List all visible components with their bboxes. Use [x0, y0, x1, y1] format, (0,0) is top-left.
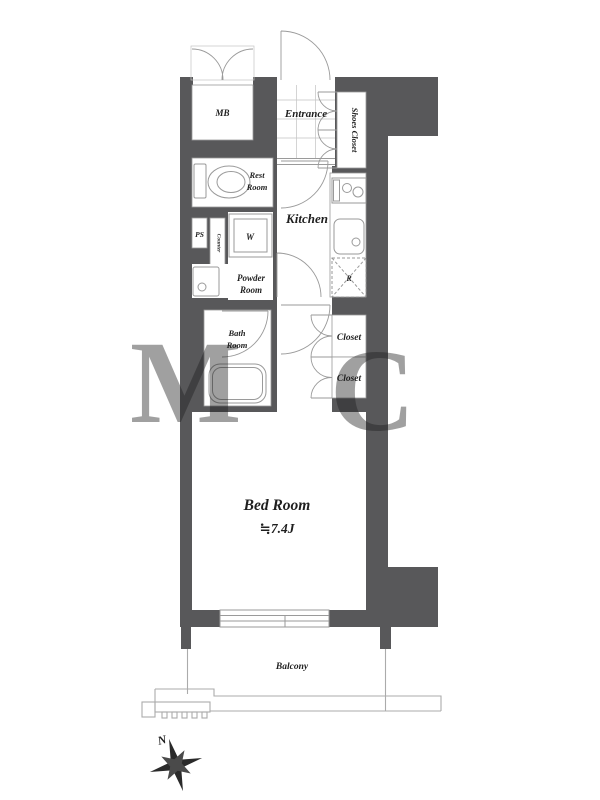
basin-nook	[192, 264, 230, 298]
watermark-letter-m: M	[130, 317, 241, 448]
bed-room-size-label: ≒7.4J	[260, 521, 296, 536]
powder-room-label-2: Room	[239, 285, 262, 295]
closet-lower-label: Closet	[337, 374, 362, 384]
compass: N	[150, 732, 202, 791]
railing-left-post	[142, 702, 155, 717]
bath-room-label-2: Room	[226, 340, 248, 350]
washer-label: W	[246, 232, 255, 242]
rest-room-label-2: Room	[246, 182, 268, 192]
railing-teeth	[162, 712, 207, 718]
entrance-floor	[277, 80, 335, 166]
wall-bottom-right-block	[366, 567, 438, 627]
wall-top-right-block	[366, 77, 438, 136]
railing-left-box	[155, 702, 210, 712]
shoes-closet-label: Shoes Closet	[350, 108, 360, 153]
watermark-letter-c: C	[330, 325, 415, 456]
floor-plan: M C MB Entrance Shoes Closet Rest Room P…	[0, 0, 600, 800]
bed-room-label: Bed Room	[243, 497, 311, 514]
wall-bottom-left	[192, 610, 222, 627]
balcony-railing	[142, 649, 441, 718]
kitchen-label: Kitchen	[285, 211, 328, 226]
railing-top-line	[155, 689, 441, 711]
mb-doors	[191, 46, 254, 80]
kitchen-hall-floor	[277, 161, 332, 412]
floor-plan-page: M C MB Entrance Shoes Closet Rest Room P…	[0, 0, 600, 800]
ps-label: PS	[195, 230, 204, 239]
counter-label: Counter	[216, 234, 222, 254]
window-icon	[220, 610, 329, 627]
closet-upper-label: Closet	[337, 333, 362, 343]
wall-left-balcony-stub	[181, 627, 191, 649]
rest-room-label-1: Rest	[248, 170, 265, 180]
compass-north-label: N	[155, 732, 169, 748]
entrance-door	[281, 31, 330, 80]
bath-room-label-1: Bath	[227, 328, 245, 338]
wall-bottom-right	[328, 610, 366, 627]
entrance-label: Entrance	[284, 108, 327, 120]
wall-right-balcony-stub	[380, 627, 391, 649]
powder-room-label-1: Powder	[237, 273, 265, 283]
mb-label: MB	[214, 108, 229, 118]
refrigerator-label: R	[345, 274, 352, 283]
balcony-label: Balcony	[275, 662, 309, 672]
